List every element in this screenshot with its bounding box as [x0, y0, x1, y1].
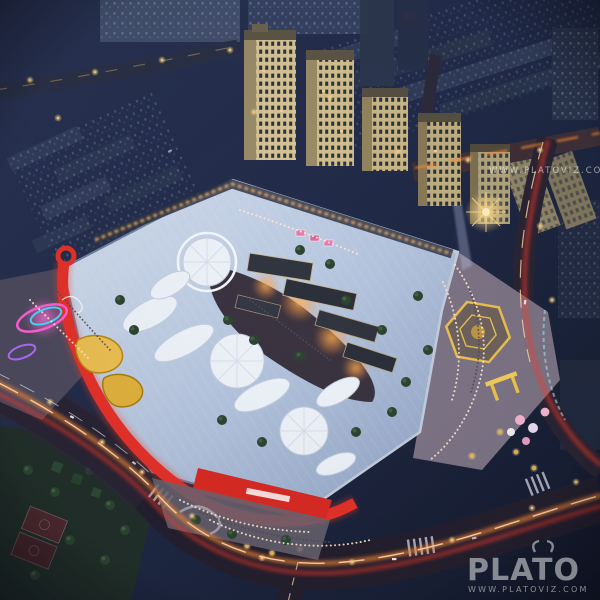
- plato-logo-text: PLATO: [467, 553, 580, 588]
- scene: WWW.PLATOVIZ.COM PLATO WWW.PLATOVIZ.COM: [0, 0, 600, 600]
- aerial-render-image: WWW.PLATOVIZ.COM PLATO WWW.PLATOVIZ.COM: [0, 0, 600, 600]
- vignette-overlay: [0, 0, 600, 600]
- watermark-url-bottom-right: WWW.PLATOVIZ.COM: [468, 585, 589, 594]
- watermark-url-top-right: WWW.PLATOVIZ.COM: [489, 166, 600, 176]
